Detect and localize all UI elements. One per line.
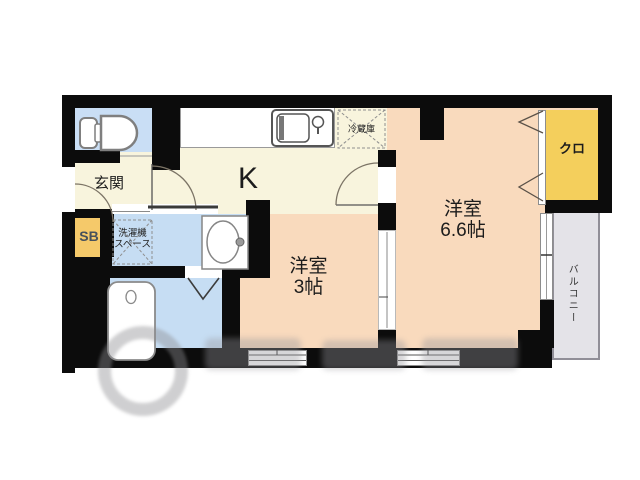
balcony-label: バルコニー [566,246,577,342]
kitchen-counter [180,107,335,148]
balcony-window [540,213,553,300]
room-3-size: 3帖 [256,277,361,298]
wall-k-room-a [378,150,396,167]
wall-wash-bath-left [100,266,185,278]
wall-toilet-right [152,108,180,170]
closet-label: クロ [550,142,594,157]
bathroom-door-opening [185,266,222,278]
closet-door [538,110,546,205]
washroom-sliding-door [112,204,218,214]
toilet-room [75,108,152,152]
entrance-label: 玄関 [78,176,140,193]
washer-label: 洗濯機 スペース [109,229,156,250]
watermark-text-fragment [422,338,518,370]
wall-top [62,95,612,108]
room-66-size: 6.6帖 [408,220,518,241]
watermark-text-fragment [205,338,301,370]
watermark-logo [98,326,188,416]
wall-right-upper [598,95,612,213]
wall-top-stub [420,95,444,140]
room-3-name: 洋室 [256,256,361,277]
room-66-name: 洋室 [408,199,518,220]
watermark-text-fragment [322,340,406,370]
rooms-sliding-opening [378,230,396,330]
room-66-label: 洋室 6.6帖 [408,199,518,242]
washer-label-line2: スペース [109,240,156,251]
wall-k-room-b [378,203,396,230]
wall-step-block [518,330,552,368]
front-door-opening [62,167,75,212]
floor-plan: K 玄関 SB 冷蔵庫 洗濯機 スペース 洋室 6.6帖 洋室 3帖 クロ バル… [0,0,640,480]
closet [545,110,598,205]
kitchen-label: K [228,162,268,196]
wall-toilet-bottom [62,150,120,163]
fridge-label: 冷蔵庫 [338,124,385,134]
room-3-label: 洋室 3帖 [256,256,361,299]
shoe-box-label: SB [75,229,103,245]
kitchen-room-door-opening [378,167,396,203]
